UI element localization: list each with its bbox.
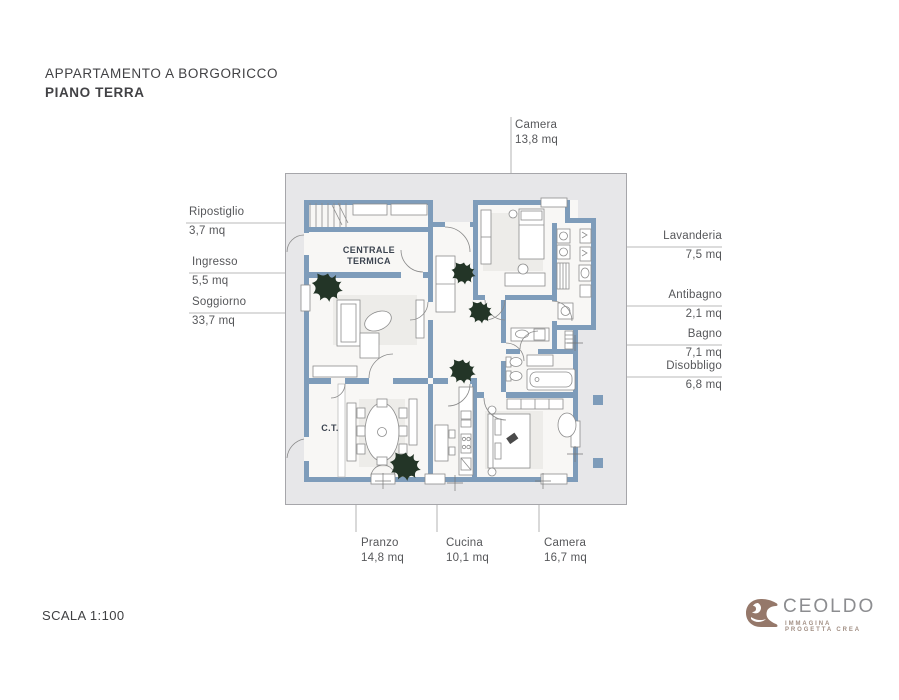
- room-label-ingresso: Ingresso 5,5 mq: [192, 256, 238, 288]
- room-label-camera-top: Camera 13,8 mq: [515, 119, 558, 147]
- floor-plan-drawing: [0, 0, 899, 700]
- room-label-centrale-termica: CENTRALE TERMICA: [328, 245, 410, 267]
- room-label-camera-bottom: Camera 16,7 mq: [544, 537, 587, 565]
- floor-plan-page: APPARTAMENTO A BORGORICCO PIANO TERRA SC…: [0, 0, 899, 700]
- logo-tagline: IMMAGINA PROGETTA CREA: [785, 621, 875, 633]
- room-label-ripostiglio: Ripostiglio 3,7 mq: [189, 206, 244, 238]
- floor-title: PIANO TERRA: [45, 85, 278, 100]
- page-title: APPARTAMENTO A BORGORICCO PIANO TERRA: [45, 66, 278, 100]
- room-label-lavanderia: Lavanderia 7,5 mq: [663, 230, 722, 262]
- room-label-pranzo: Pranzo 14,8 mq: [361, 537, 404, 565]
- room-label-bagno: Bagno 7,1 mq: [686, 328, 722, 360]
- scale-label: SCALA 1:100: [42, 608, 124, 623]
- room-label-ct: C.T.: [312, 423, 348, 434]
- project-title: APPARTAMENTO A BORGORICCO: [45, 66, 278, 81]
- room-label-soggiorno: Soggiorno 33,7 mq: [192, 296, 246, 328]
- room-label-cucina: Cucina 10,1 mq: [446, 537, 489, 565]
- room-label-antibagno: Antibagno 2,1 mq: [668, 289, 722, 321]
- logo-name: CEOLDO: [783, 596, 875, 618]
- ceoldo-logo: CEOLDO IMMAGINA PROGETTA CREA: [745, 596, 875, 636]
- ceoldo-logo-icon: [745, 598, 779, 628]
- room-label-disobbligo: Disobbligo 6,8 mq: [666, 360, 722, 392]
